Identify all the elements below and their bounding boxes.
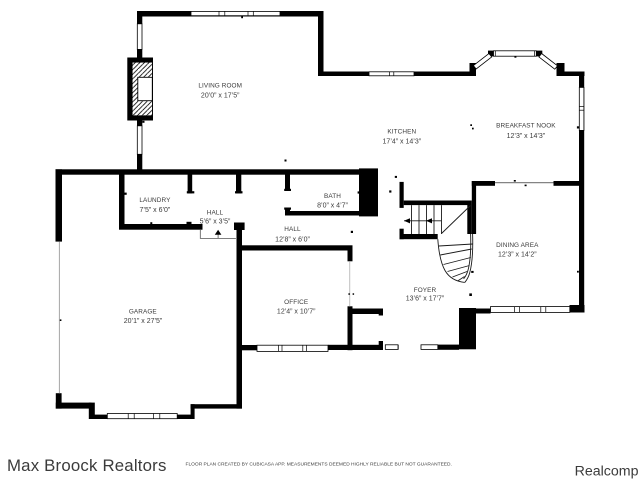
svg-text:20’1” x 27’5”: 20’1” x 27’5” xyxy=(124,318,163,325)
svg-text:17’4” x 14’3”: 17’4” x 14’3” xyxy=(383,138,422,145)
svg-text:Realcomp: Realcomp xyxy=(575,464,639,480)
svg-text:OFFICE: OFFICE xyxy=(284,299,308,306)
svg-text:HALL: HALL xyxy=(207,210,224,217)
svg-text:FOYER: FOYER xyxy=(414,287,437,294)
svg-text:KITCHEN: KITCHEN xyxy=(387,129,416,136)
svg-text:13’6” x 17’7”: 13’6” x 17’7” xyxy=(406,296,445,303)
svg-text:12’8” x 6’0”: 12’8” x 6’0” xyxy=(275,237,310,244)
svg-text:LAUNDRY: LAUNDRY xyxy=(139,197,171,204)
svg-text:DINING AREA: DINING AREA xyxy=(496,242,539,249)
svg-text:12’4” x 10’7”: 12’4” x 10’7” xyxy=(277,308,316,315)
svg-text:FLOOR PLAN CREATED BY CUBICASA: FLOOR PLAN CREATED BY CUBICASA APP. MEAS… xyxy=(186,462,452,468)
svg-text:GARAGE: GARAGE xyxy=(129,309,157,316)
svg-text:HALL: HALL xyxy=(284,226,301,233)
svg-text:12’3” x 14’2”: 12’3” x 14’2” xyxy=(498,252,537,259)
svg-text:Max Broock Realtors: Max Broock Realtors xyxy=(7,456,167,475)
svg-text:BREAKFAST NOOK: BREAKFAST NOOK xyxy=(496,123,556,130)
svg-text:5’6” x 3’5”: 5’6” x 3’5” xyxy=(200,219,231,226)
svg-text:LIVING ROOM: LIVING ROOM xyxy=(198,83,242,90)
svg-text:BATH: BATH xyxy=(324,193,341,200)
svg-text:20’0” x 17’5”: 20’0” x 17’5” xyxy=(201,93,240,100)
svg-text:12’3” x 14’3”: 12’3” x 14’3” xyxy=(507,133,546,140)
svg-text:7’5” x 6’0”: 7’5” x 6’0” xyxy=(140,207,171,214)
svg-text:8’0” x 4’7”: 8’0” x 4’7” xyxy=(317,202,348,209)
